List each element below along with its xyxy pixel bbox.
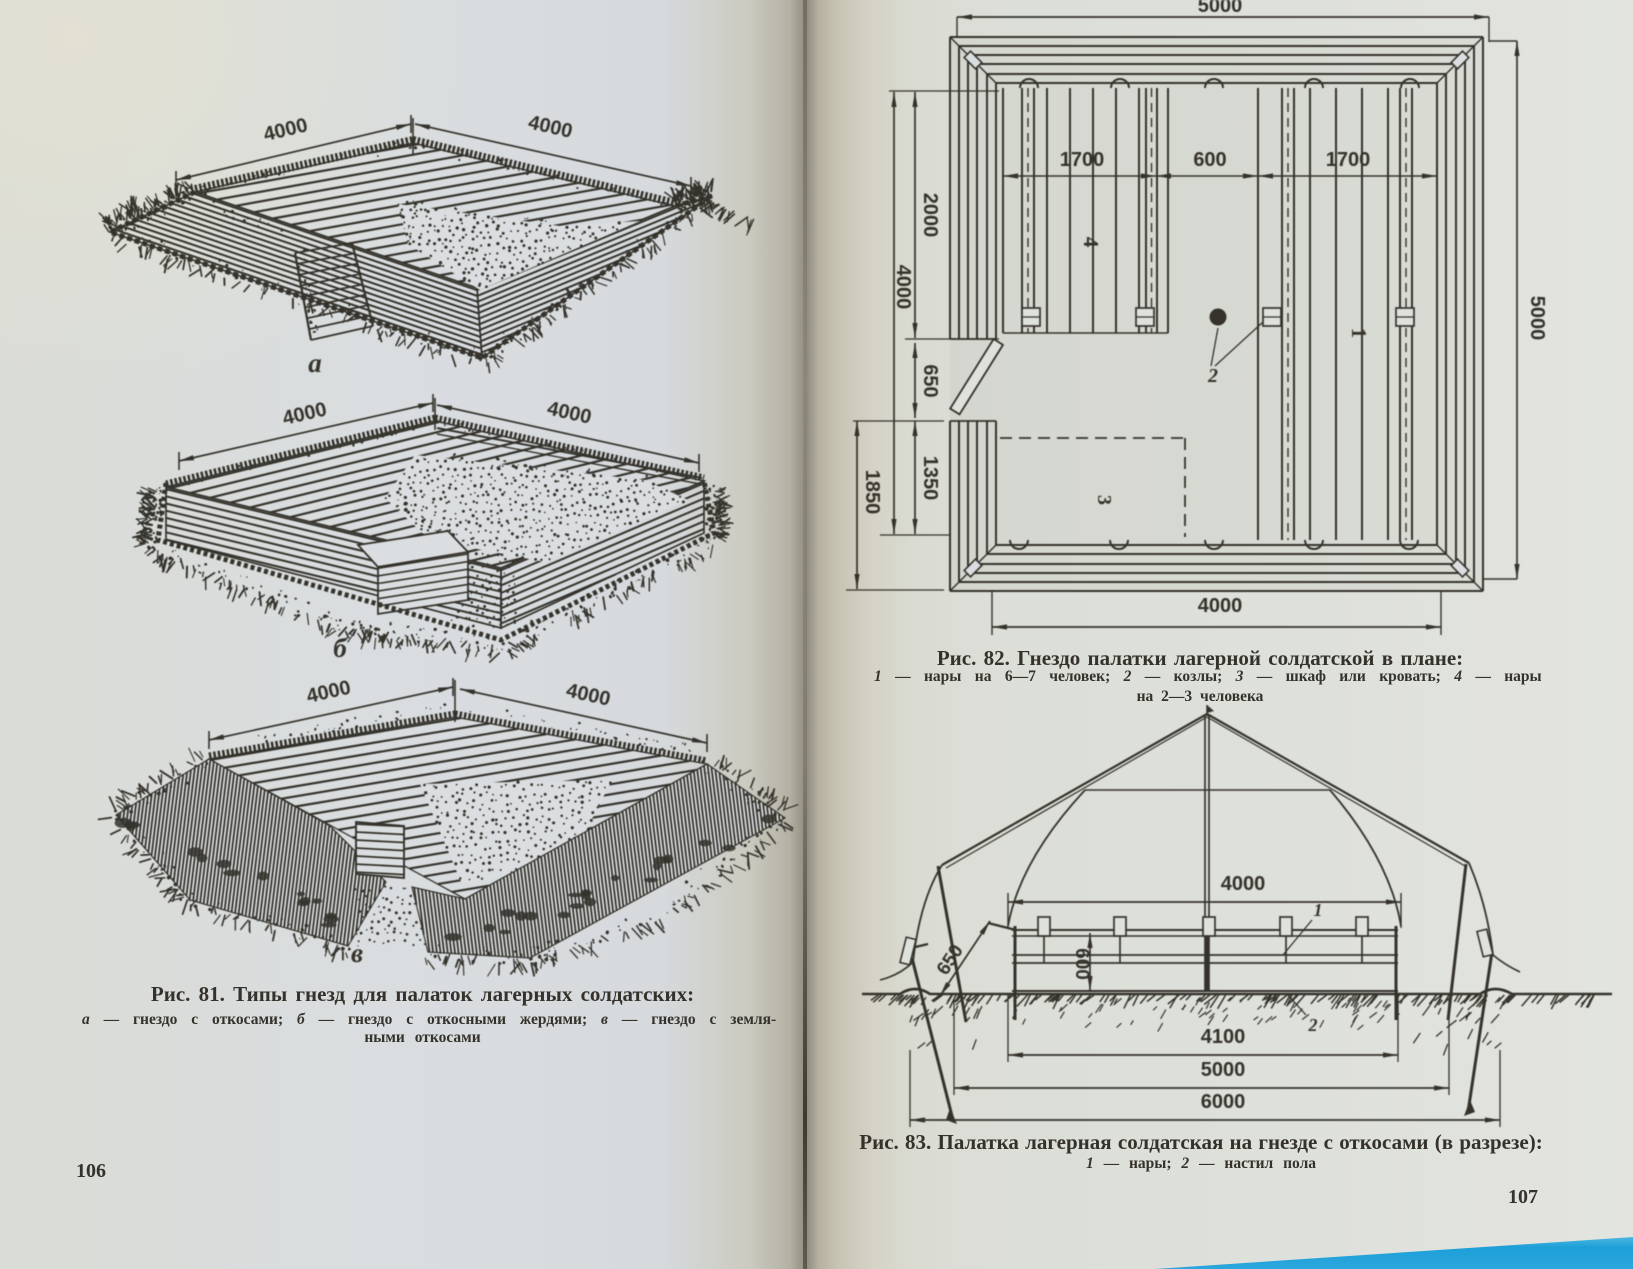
svg-text:в: в [351,938,363,968]
svg-text:1850: 1850 [861,470,883,515]
svg-text:4000: 4000 [280,398,328,429]
svg-text:4000: 4000 [305,677,353,708]
svg-text:4000: 4000 [261,114,309,146]
svg-text:1700: 1700 [1060,149,1105,171]
svg-text:4000: 4000 [564,680,612,711]
svg-text:4000: 4000 [1198,595,1243,617]
svg-text:1350: 1350 [919,456,941,501]
svg-text:4000: 4000 [545,398,593,429]
svg-text:5000: 5000 [1526,296,1548,341]
svg-text:5000: 5000 [1198,0,1243,17]
svg-text:1: 1 [1314,900,1323,920]
svg-text:1: 1 [1347,328,1371,339]
svg-text:4000: 4000 [892,265,914,310]
svg-text:4000: 4000 [526,112,574,143]
svg-text:600: 600 [1193,149,1226,171]
svg-text:а: а [308,348,322,378]
svg-text:2000: 2000 [919,193,941,238]
svg-text:650: 650 [919,364,941,397]
svg-text:2: 2 [1207,365,1218,387]
svg-text:650: 650 [933,941,968,979]
svg-text:2: 2 [1308,1015,1318,1035]
svg-text:3: 3 [1093,495,1115,505]
svg-text:1700: 1700 [1326,149,1371,171]
svg-text:600: 600 [1071,948,1092,980]
svg-text:5000: 5000 [1201,1059,1246,1081]
svg-text:4000: 4000 [1221,873,1266,895]
svg-text:4: 4 [1079,237,1103,248]
svg-text:б: б [333,633,348,663]
svg-text:4100: 4100 [1201,1026,1246,1048]
svg-text:6000: 6000 [1201,1091,1246,1113]
